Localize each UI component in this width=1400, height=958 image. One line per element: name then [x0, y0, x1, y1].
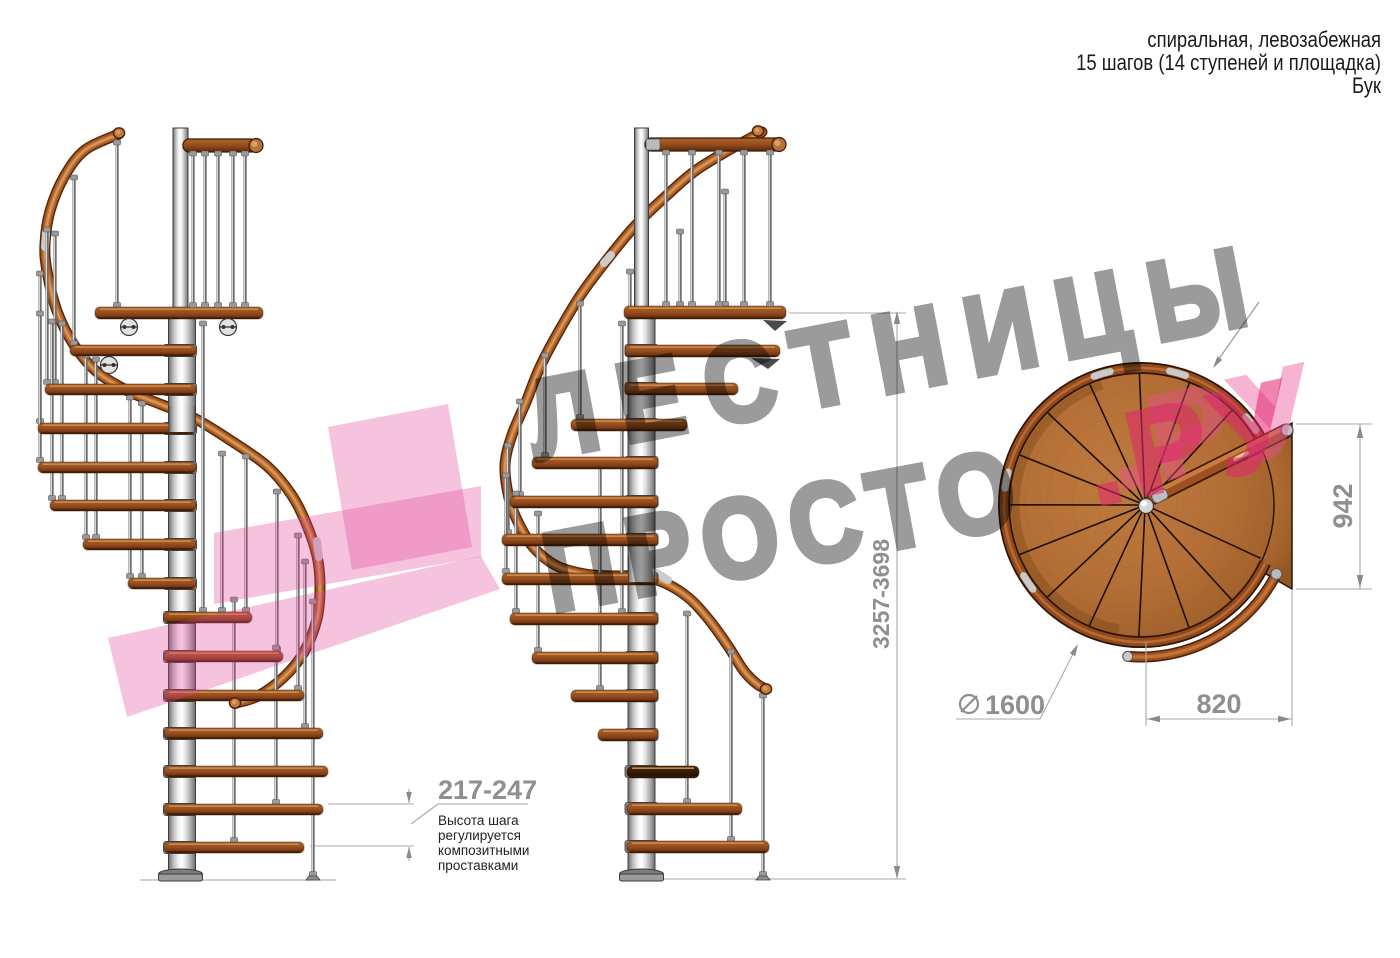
- svg-text:спиральная, левозабежная: спиральная, левозабежная: [1147, 27, 1381, 52]
- svg-text:Высота шага: Высота шага: [438, 813, 519, 828]
- svg-text:проставками: проставками: [438, 858, 518, 873]
- svg-text:820: 820: [1196, 689, 1241, 719]
- svg-text:15 шагов (14 ступеней и площад: 15 шагов (14 ступеней и площадка): [1076, 50, 1381, 75]
- svg-text:Бук: Бук: [1352, 73, 1382, 98]
- svg-text:регулируется: регулируется: [438, 828, 521, 843]
- svg-text:217-247: 217-247: [438, 775, 537, 805]
- svg-text:942: 942: [1328, 483, 1358, 528]
- svg-text:1600: 1600: [985, 690, 1045, 720]
- svg-text:композитными: композитными: [438, 843, 529, 858]
